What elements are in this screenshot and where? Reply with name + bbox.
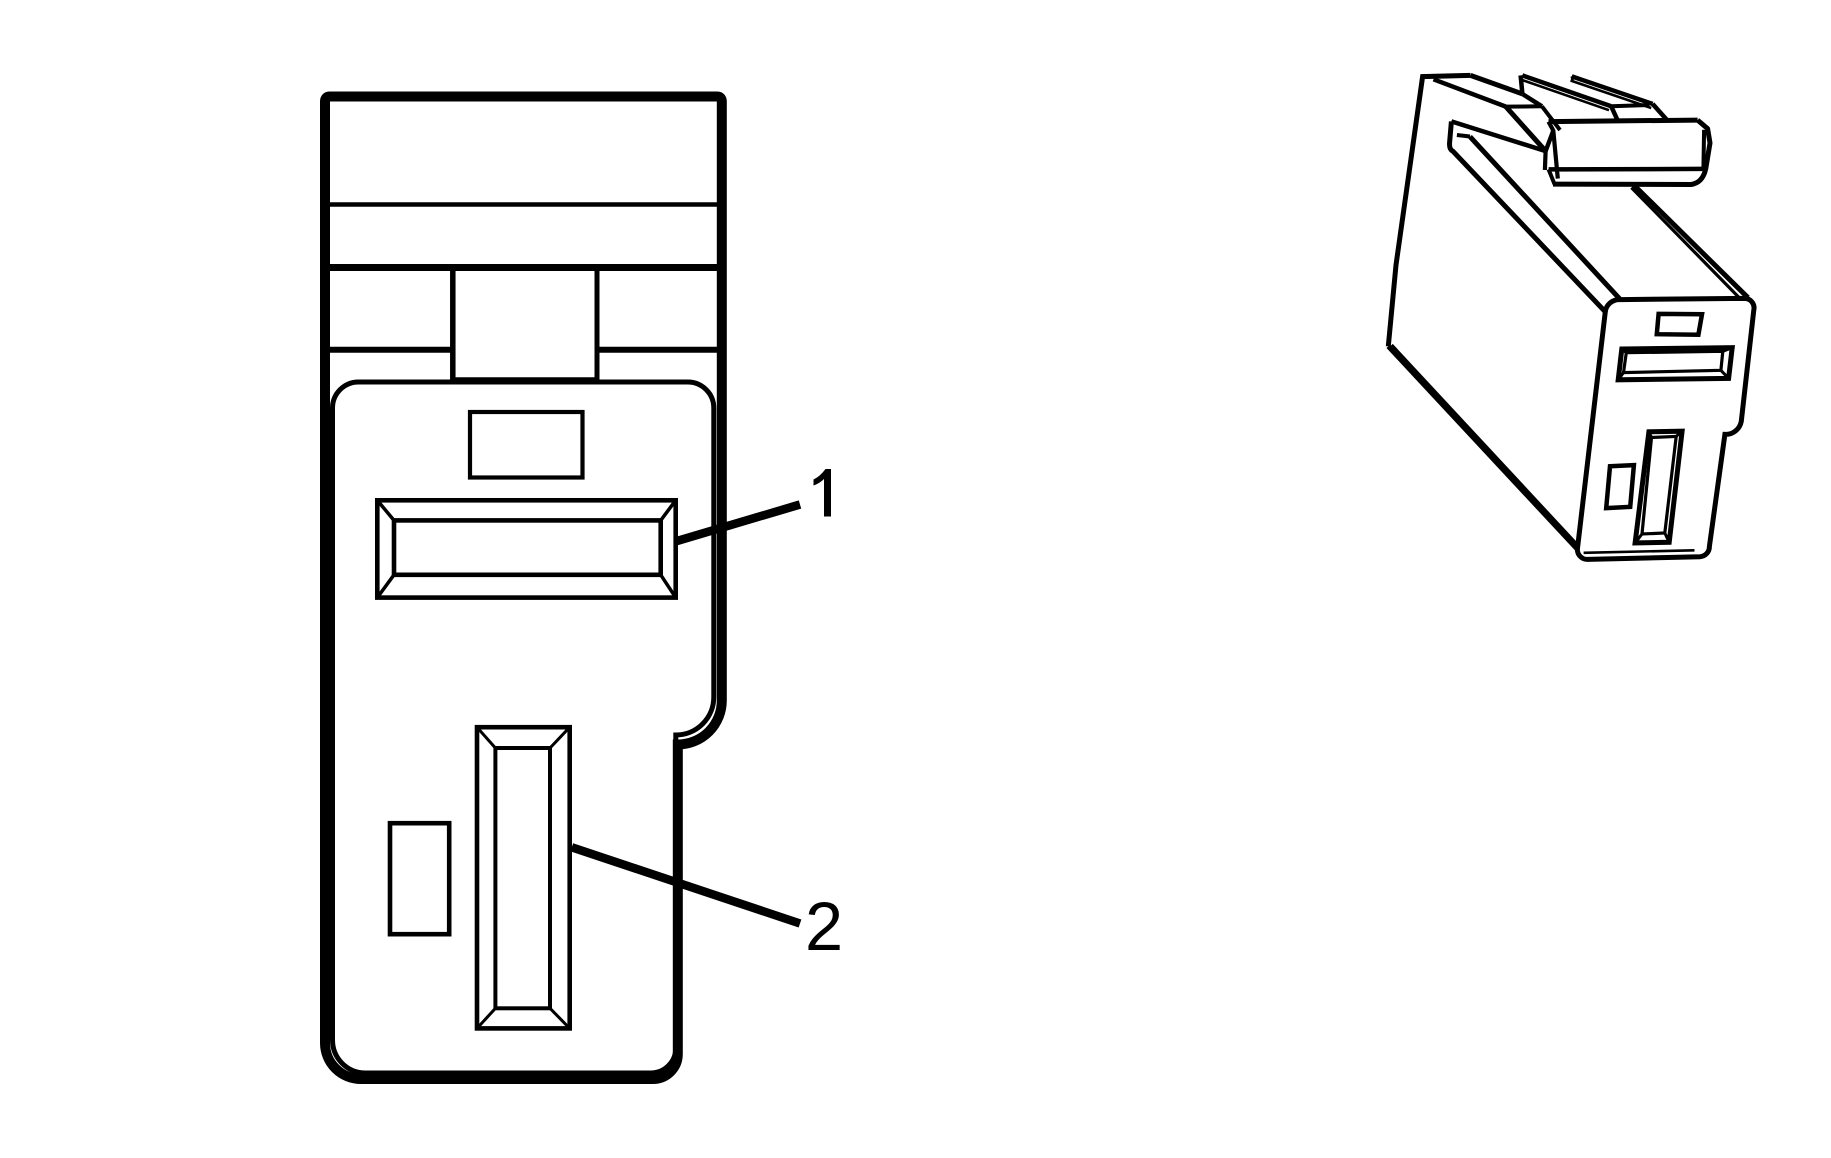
svg-text:2: 2 xyxy=(805,888,843,965)
